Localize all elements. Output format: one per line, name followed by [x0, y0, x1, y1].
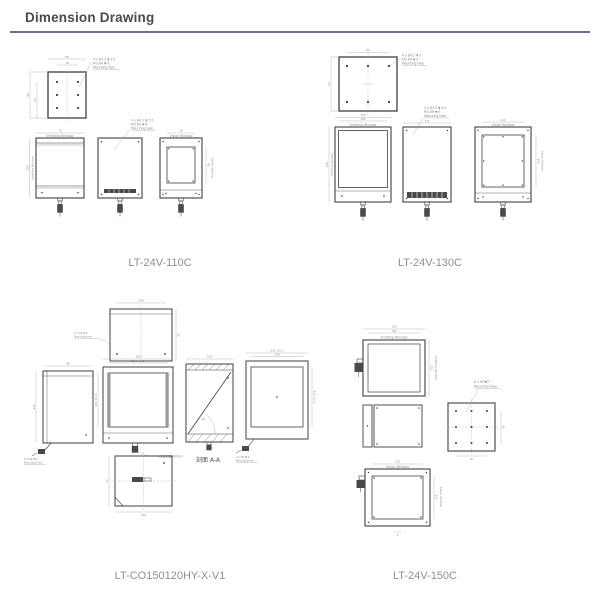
cable-connector	[424, 202, 430, 221]
dim-text: 104	[360, 117, 366, 121]
dim-text: 96	[26, 93, 30, 97]
emitting-window-label: Emitting Window	[349, 123, 376, 127]
dim-text: 58	[65, 55, 69, 59]
cable-connector	[178, 198, 184, 217]
mounting-hole-callout: 6 x M3▼7	[474, 380, 489, 384]
mounting-hole-callout: Mounting hole	[236, 459, 254, 463]
dim-text: 56	[179, 129, 183, 133]
vision-window-label: Vision Window	[491, 123, 514, 127]
cable-connector	[32, 443, 51, 456]
dim-text: 142	[391, 329, 397, 333]
product-label-lt-24v-110c: LT-24V-110C	[20, 257, 300, 269]
cable-connector	[132, 443, 138, 453]
dim-text: 120	[395, 460, 401, 464]
dim-text: 120 ±0.5	[313, 390, 317, 403]
dim-text: 148	[138, 299, 144, 303]
dim-text: 70	[58, 129, 62, 133]
cable-connector	[117, 198, 123, 217]
vision-window-label: Vision Window	[169, 134, 192, 138]
cable-connector	[57, 198, 63, 217]
emitting-window-vertical-label: Emitting Window	[434, 356, 438, 380]
vision-window-vertical-label: Vision Window	[541, 151, 545, 172]
back-view: 56 Vision Window 45 Vision Window	[160, 129, 215, 217]
side-view	[363, 405, 422, 447]
dim-text: 148	[141, 513, 147, 517]
vision-view: 120 Vision Window 120 Vision Window 9	[357, 460, 444, 537]
front-view: 160 136 ±0.5 105 ±0.5 线缆长度600mm	[94, 355, 183, 459]
header-accent-rule	[10, 31, 590, 33]
dim-text: 110	[500, 118, 506, 122]
mounting-hole-callout: Mounting hole	[402, 62, 424, 66]
dim-text: 110	[26, 165, 30, 171]
dim-text: 105 ±0.5	[94, 393, 98, 406]
mounting-hole-callout: Mounting hole	[74, 335, 92, 339]
product-label-lt-24v-150c: LT-24V-150C	[315, 570, 535, 582]
emitting-window-label: Emitting Window	[380, 335, 407, 339]
dimension-drawing-lt-24v-110c: 42 58 96 64 4 x Ø3.2 ▼ 3.5 M3-6H ▼ 6 Mou…	[20, 48, 300, 260]
section-view: 45° 107 剖面 A-A	[186, 355, 233, 464]
dim-text: 9	[397, 533, 399, 537]
mounting-hole-callout: 4 x M4 ▼ 6	[24, 457, 38, 461]
front-view: 70 Emitting Window 110 Emitting Window	[26, 129, 85, 217]
dim-text: 52	[327, 82, 331, 86]
hatch-bottom	[188, 434, 227, 442]
vision-window-vertical-label: Vision Window	[439, 487, 443, 508]
section-label: 剖面 A-A	[196, 456, 221, 464]
dimension-drawing-lt-co150120hy: 148 96 2 x M4 ▼ 6 Mounting hole 96 120 4…	[18, 293, 318, 565]
dim-text: 96	[66, 362, 70, 366]
bottom-view: 52 148	[105, 452, 176, 517]
dim-text: 111	[424, 119, 430, 123]
side-view: 4 x Ø4.2 ▼ 5.5 M3-6H ▼ 6 Mounting hole	[98, 118, 156, 217]
cable-connector	[355, 359, 364, 377]
dim-text: 120	[32, 404, 36, 410]
dim-text: 107	[207, 355, 213, 359]
mounting-hole-callout: Mounting hole	[93, 66, 115, 70]
mounting-hole-callout: 2 x M4 ▼ 6	[74, 331, 88, 335]
dim-text: 64	[33, 98, 37, 102]
front-view: 150 142 Emitting Window 150 Emitting Win…	[355, 325, 439, 396]
page-title: Dimension Drawing	[25, 10, 154, 25]
product-label-lt-24v-130c: LT-24V-130C	[310, 257, 550, 269]
dim-text: 130	[325, 162, 329, 168]
mounting-hole-callout: 4 x M4 ▼ 6	[236, 455, 250, 459]
dim-text: 136 ±0.5	[131, 359, 144, 363]
back-view: 6 x M3▼7 Mounting Hole 45 90	[444, 380, 506, 461]
cable-connector	[357, 476, 366, 492]
dim-text: 96	[177, 333, 181, 337]
dim-text: 100	[537, 158, 541, 164]
hatch-top	[188, 364, 229, 370]
dim-text: 60	[366, 48, 370, 52]
vision-window-label: Vision Window	[386, 465, 409, 469]
left-view: 96 120 4 x M4 ▼ 6 Mounting hole	[24, 362, 93, 465]
front-view: 130 104 Emitting Window 130 Emitting Win…	[325, 113, 391, 220]
top-view: 60 52 4 x Ø4.2 ▼ 5 M3-6H ▼ 6 Mounting ho…	[327, 48, 427, 115]
right-view: 150 ±0.5 140 120 ±0.5 4 x M4 ▼ 6 Mountin…	[236, 349, 317, 463]
cable-connector	[206, 442, 211, 450]
angle-text: 45°	[201, 417, 207, 421]
product-label-lt-co150120hy: LT-CO150120HY-X-V1	[20, 570, 320, 582]
emitting-window-vertical-label: Emitting Window	[30, 155, 34, 179]
dim-text: 52	[105, 479, 109, 483]
mounting-hole-callout: Mounting hole	[131, 127, 153, 131]
top-view: 42 58 96 64 4 x Ø3.2 ▼ 3.5 M3-6H ▼ 6 Mou…	[26, 55, 119, 122]
side-view: 111 2 x Ø3.3 ▼ 6.5 M3-6H ▼ 6 Mounting ho…	[403, 105, 451, 221]
dimension-drawing-lt-24v-130c: 60 52 4 x Ø4.2 ▼ 5 M3-6H ▼ 6 Mounting ho…	[315, 45, 585, 260]
vision-window-vertical-label: Vision Window	[211, 158, 215, 179]
dim-text: 150	[430, 365, 434, 371]
emitting-window-vertical-label: Emitting Window	[330, 152, 334, 176]
mounting-hole-callout: Mounting Hole	[474, 385, 497, 389]
dim-text: 45	[502, 425, 506, 429]
dim-text: 45	[207, 163, 211, 167]
dimension-drawing-lt-24v-150c: 150 142 Emitting Window 150 Emitting Win…	[328, 293, 583, 568]
emitting-window-label: Emitting Window	[46, 134, 73, 138]
dim-text: 140	[274, 353, 280, 357]
back-view: 110 Vision Window 100 Vision Window	[475, 118, 545, 221]
dim-text: 120	[435, 494, 439, 500]
dim-text: 90	[470, 457, 474, 461]
cable-connector	[500, 202, 506, 221]
mounting-hole-callout: Mounting hole	[424, 114, 446, 118]
dim-text: 42	[66, 61, 70, 65]
cable-connector	[236, 439, 254, 453]
mounting-hole-callout: Mounting hole	[24, 461, 42, 465]
cable-connector	[360, 202, 366, 221]
top-view: 148 96 2 x M4 ▼ 6 Mounting hole	[74, 299, 181, 365]
